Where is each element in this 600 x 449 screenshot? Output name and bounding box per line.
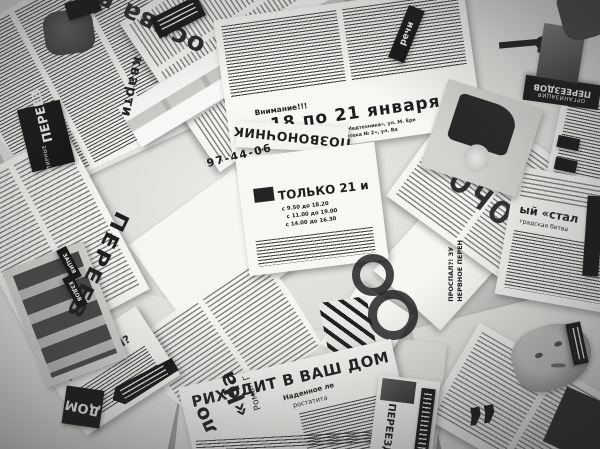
ad-photo-chip	[253, 187, 275, 203]
headline-prospal: ПРОСПАЛ?! ЗУ	[448, 240, 455, 302]
face-mouth	[551, 363, 566, 367]
headline-tolko: ТОЛЬКО 21 и	[277, 179, 369, 203]
ad-photo-chip	[380, 378, 416, 404]
face-eye	[554, 340, 563, 347]
badge-text-lines	[569, 327, 584, 360]
headline-dom: ДОМ	[64, 396, 102, 419]
dark-ring-shape	[368, 290, 418, 340]
dom-badge: ДОМ	[62, 386, 105, 429]
text-columns	[213, 0, 475, 105]
phone-list-strip	[414, 388, 436, 449]
newspaper-collage-photo: осква в кварти Внимание!!! с 18 по 21 ян…	[0, 0, 600, 449]
headline-pereezdov-vertical: ПЕРЕЕЗДОВ	[377, 403, 396, 449]
pereezdov-vertical-scrap: ПЕРЕЕЗДОВ	[369, 375, 440, 449]
vertical-headline-group: ПРОСПАЛ?! ЗУ НЕРВНОЕ ПЕРЕН	[448, 240, 464, 302]
headline-nervnoe: НЕРВНОЕ ПЕРЕН	[457, 240, 464, 302]
face-eye	[534, 352, 543, 359]
strip-text-lines	[417, 393, 432, 449]
